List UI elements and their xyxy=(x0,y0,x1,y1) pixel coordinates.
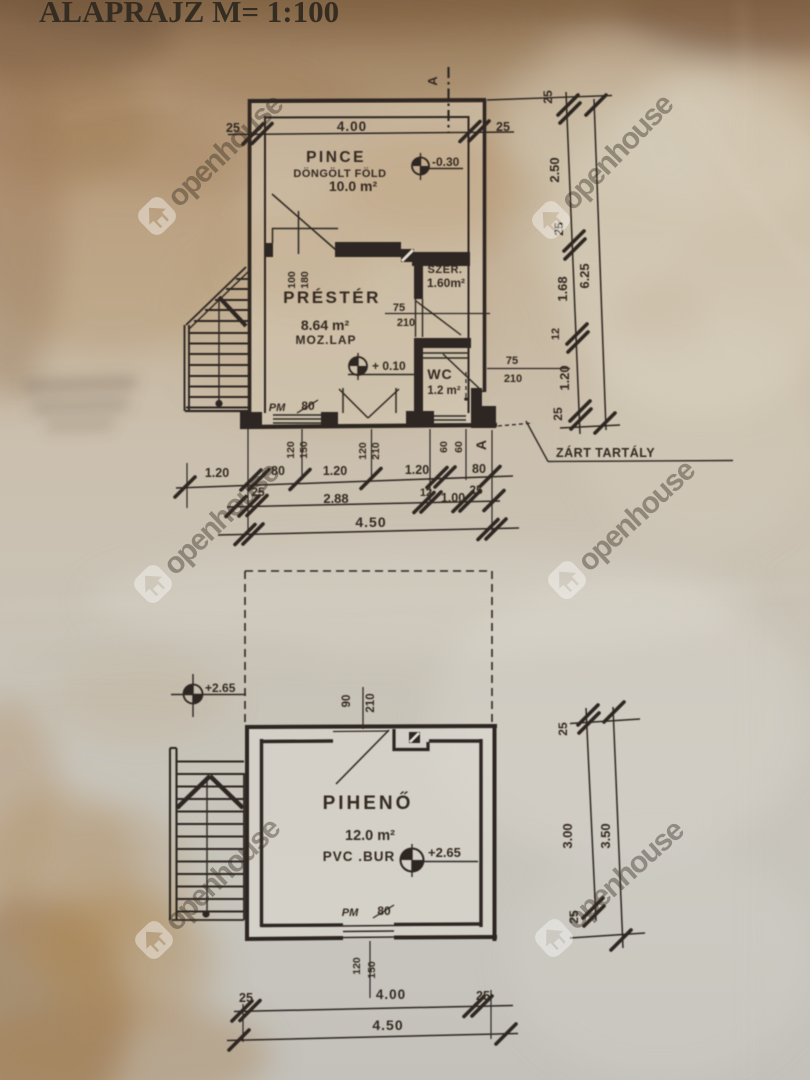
svg-text:12.0 m²: 12.0 m² xyxy=(345,828,395,844)
svg-text:210: 210 xyxy=(504,373,522,385)
svg-text:120: 120 xyxy=(285,441,297,459)
svg-text:150: 150 xyxy=(298,441,310,459)
svg-text:2.50: 2.50 xyxy=(547,157,562,182)
svg-text:75: 75 xyxy=(393,302,405,314)
svg-text:25: 25 xyxy=(239,991,253,1005)
svg-text:4.50: 4.50 xyxy=(372,1017,403,1033)
svg-text:60: 60 xyxy=(438,441,450,453)
svg-text:WC: WC xyxy=(427,366,452,382)
svg-text:210: 210 xyxy=(397,317,415,329)
svg-text:PRÉSTÉR: PRÉSTÉR xyxy=(283,288,381,307)
svg-text:25: 25 xyxy=(556,722,570,736)
svg-text:120: 120 xyxy=(357,442,369,460)
svg-text:PVC .BUR: PVC .BUR xyxy=(323,849,396,864)
svg-text:-0.30: -0.30 xyxy=(432,155,460,169)
svg-text:1.20: 1.20 xyxy=(205,466,229,480)
svg-text:+ 0.10: + 0.10 xyxy=(372,359,406,373)
svg-text:12: 12 xyxy=(420,487,432,499)
svg-text:25: 25 xyxy=(551,407,565,421)
svg-text:8.64 m²: 8.64 m² xyxy=(301,317,350,333)
svg-text:4.00: 4.00 xyxy=(337,119,367,134)
svg-text:PM: PM xyxy=(269,402,286,414)
svg-text:1.20: 1.20 xyxy=(323,464,347,478)
svg-text:60: 60 xyxy=(453,441,465,453)
svg-text:150: 150 xyxy=(366,961,378,979)
svg-text:180: 180 xyxy=(299,271,311,289)
svg-text:PIHENŐ: PIHENŐ xyxy=(323,792,414,814)
svg-text:1.20: 1.20 xyxy=(557,365,572,390)
svg-text:PINCE: PINCE xyxy=(306,149,366,166)
svg-text:210: 210 xyxy=(365,693,377,712)
svg-text:A: A xyxy=(473,440,489,450)
svg-text:3.00: 3.00 xyxy=(560,823,575,848)
svg-text:90: 90 xyxy=(341,695,353,708)
svg-text:210: 210 xyxy=(370,442,382,460)
svg-text:75: 75 xyxy=(506,355,518,367)
svg-text:4.50: 4.50 xyxy=(355,514,386,530)
svg-text:100: 100 xyxy=(286,271,298,289)
svg-text:1.00: 1.00 xyxy=(441,491,465,505)
svg-text:+2.65: +2.65 xyxy=(428,845,461,860)
svg-text:25: 25 xyxy=(496,120,510,134)
svg-text:2.88: 2.88 xyxy=(323,491,348,506)
svg-text:+2.65: +2.65 xyxy=(205,681,236,695)
svg-text:ALAPRAJZ M= 1:100: ALAPRAJZ M= 1:100 xyxy=(39,0,339,29)
svg-text:1.68: 1.68 xyxy=(555,276,570,301)
svg-text:SZER.: SZER. xyxy=(428,264,463,276)
svg-text:25: 25 xyxy=(541,90,555,104)
svg-text:1.20: 1.20 xyxy=(405,463,429,477)
svg-text:80: 80 xyxy=(472,462,486,476)
svg-text:25: 25 xyxy=(476,989,490,1003)
svg-text:25: 25 xyxy=(469,483,483,497)
svg-text:A: A xyxy=(425,76,440,86)
svg-text:PM: PM xyxy=(342,907,359,919)
svg-text:1.2 m²: 1.2 m² xyxy=(427,385,460,397)
svg-text:4.00: 4.00 xyxy=(376,987,406,1002)
svg-text:12: 12 xyxy=(550,328,562,340)
svg-text:120: 120 xyxy=(351,957,363,975)
svg-text:1.60m²: 1.60m² xyxy=(427,276,465,290)
svg-text:ZÁRT TARTÁLY: ZÁRT TARTÁLY xyxy=(556,445,655,460)
svg-text:3.50: 3.50 xyxy=(598,823,613,848)
svg-text:MOZ.LAP: MOZ.LAP xyxy=(296,333,357,347)
svg-text:6.25: 6.25 xyxy=(577,263,592,288)
svg-text:10.0 m²: 10.0 m² xyxy=(329,178,378,194)
